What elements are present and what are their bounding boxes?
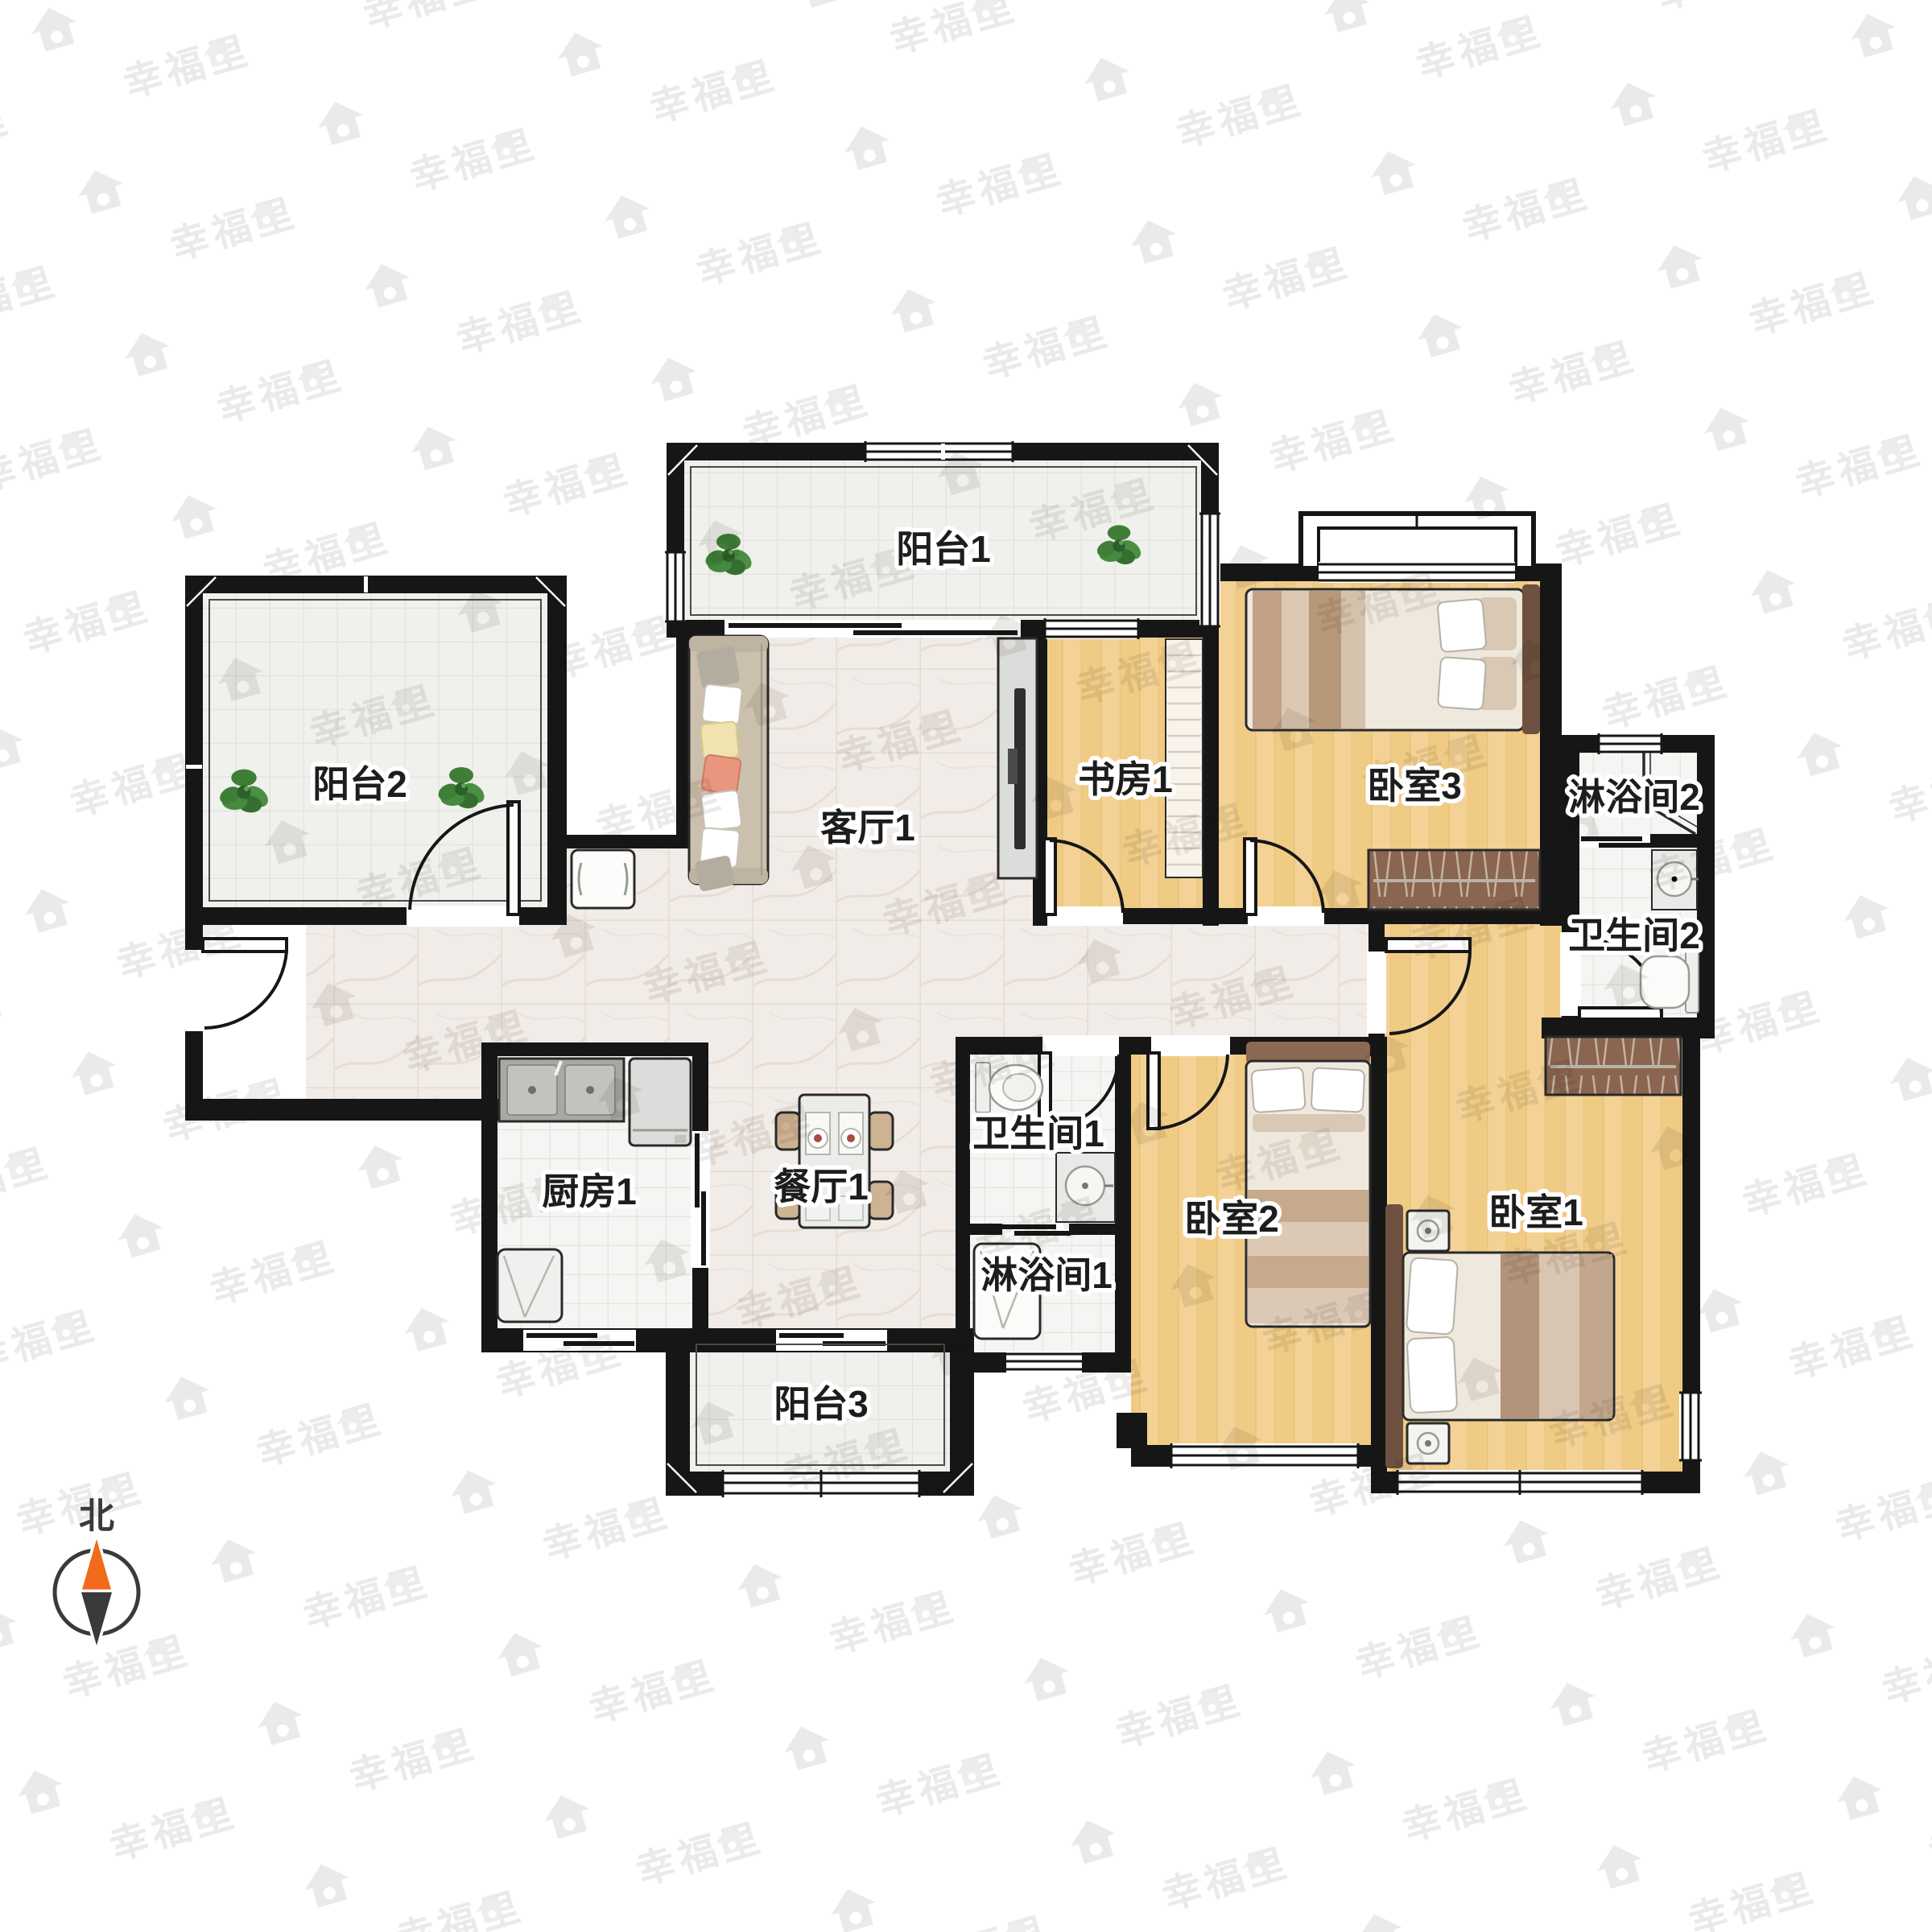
room-label-bedroom-1: 卧室1 bbox=[1488, 1191, 1583, 1233]
room-label-bathroom-2: 卫生间2 bbox=[1568, 914, 1700, 956]
room-label-balcony-1: 阳台1 bbox=[896, 528, 991, 570]
floor-plan: 幸福里 bbox=[0, 0, 1932, 1932]
room-label-bedroom-2: 卧室2 bbox=[1184, 1198, 1279, 1240]
room-label-bathroom-1: 卫生间1 bbox=[972, 1113, 1104, 1154]
room-label-balcony-2: 阳台2 bbox=[312, 763, 407, 805]
room-label-shower-room-1: 淋浴间1 bbox=[980, 1254, 1113, 1296]
room-label-study-1: 书房1 bbox=[1078, 758, 1173, 800]
room-label-living-room-1: 客厅1 bbox=[820, 807, 915, 848]
room-label-kitchen-1: 厨房1 bbox=[542, 1170, 637, 1212]
room-label-balcony-3: 阳台3 bbox=[774, 1383, 869, 1425]
watermark bbox=[0, 0, 1932, 1932]
room-label-bedroom-3: 卧室3 bbox=[1367, 765, 1462, 807]
room-label-dining-room-1: 餐厅1 bbox=[774, 1166, 869, 1207]
room-label-shower-room-2: 淋浴间2 bbox=[1568, 776, 1700, 818]
